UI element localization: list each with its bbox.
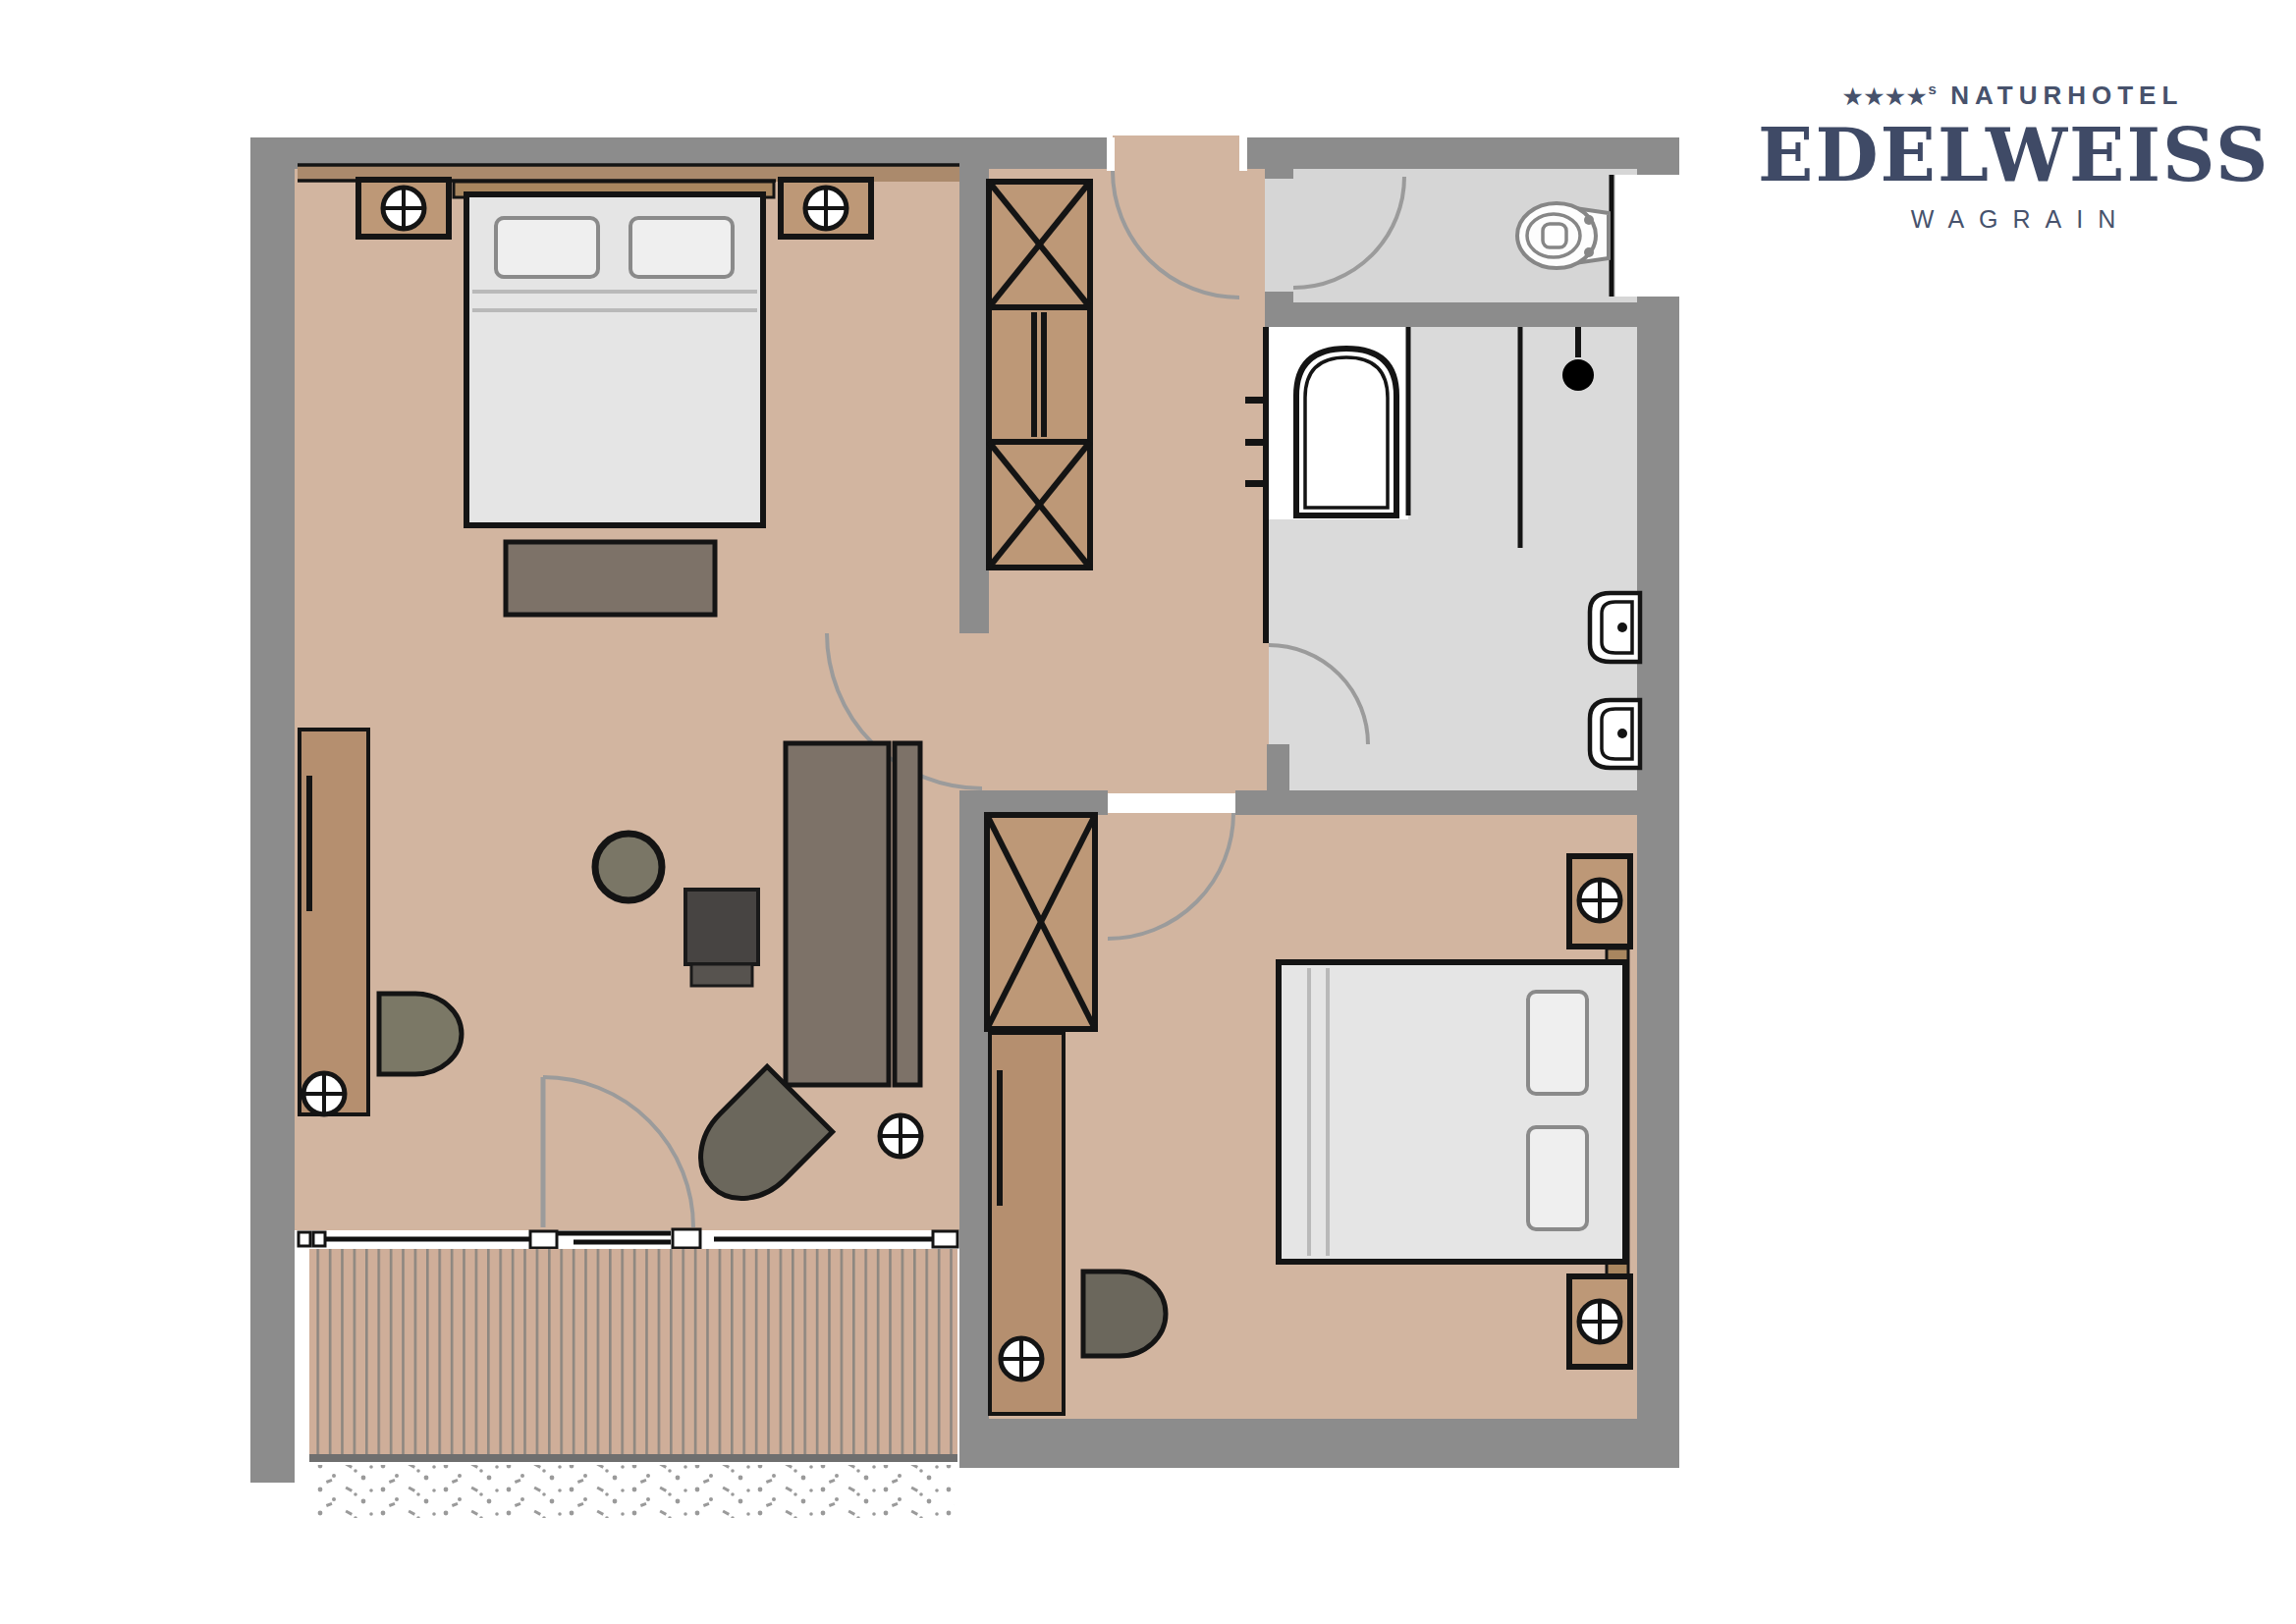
hotel-type: NATURHOTEL (1950, 81, 2183, 110)
lamp-icon-floor (880, 1115, 921, 1157)
wc-wall-stub-top (1265, 169, 1293, 179)
round-side-table (595, 834, 662, 900)
bed2-double-bed (1279, 962, 1625, 1262)
right-wall (1637, 137, 1679, 1468)
window-post (933, 1231, 957, 1247)
bathroom-bedroom2-wall (1235, 790, 1637, 815)
bedroom-1-door-gap-floor (959, 633, 989, 790)
lamp-icon-cabinet (1001, 1338, 1042, 1380)
wc-door-gap-floor (1265, 177, 1293, 292)
wardrobe-crossed-top (989, 182, 1090, 307)
bathroom-door-stub (1267, 744, 1289, 790)
long-desk (786, 743, 920, 1085)
wc-window (1612, 175, 1679, 297)
wall-sideboard (300, 730, 368, 1114)
wardrobe-crossed-bottom (989, 442, 1090, 568)
deck-edge (309, 1454, 957, 1462)
left-wall (250, 137, 295, 1483)
wardrobe-shelves (989, 307, 1090, 442)
lamp-icon-sideboard (303, 1073, 345, 1114)
pillow (1528, 992, 1587, 1094)
floorplan-page: { "brand": { "stars": "★★★★", "stars_sup… (0, 0, 2296, 1624)
wood-deck (309, 1249, 957, 1457)
lamp-icon-bottom (1579, 1301, 1620, 1342)
window-post (673, 1229, 700, 1248)
door-post (1239, 137, 1247, 171)
washbasin-upper (1590, 593, 1640, 662)
washbasin-lower (1590, 700, 1640, 768)
stars-superior: s (1929, 81, 1938, 97)
pillow (496, 218, 598, 277)
armchair (379, 994, 462, 1074)
window-post (313, 1232, 325, 1246)
gravel-strip (312, 1465, 955, 1518)
top-wall-right (1239, 137, 1679, 169)
balcony (309, 1249, 957, 1518)
entry-gap-floor (1113, 135, 1239, 171)
toilet-icon (1517, 203, 1609, 268)
balcony-window-front (295, 1229, 959, 1249)
bed1-double-bed (466, 194, 763, 525)
floor-plan (0, 0, 2296, 1624)
wc (1517, 203, 1609, 268)
bathtub-icon (1296, 349, 1396, 515)
hotel-location: WAGRAIN (1758, 205, 2269, 234)
window-post (530, 1231, 557, 1248)
hall-bedroom2-wall-left (989, 790, 1108, 815)
bottom-wall (959, 1419, 1679, 1468)
wardrobe-crossed (987, 815, 1095, 1029)
pillow (630, 218, 733, 277)
window-post (299, 1232, 310, 1246)
bed1-bench (506, 542, 715, 615)
hotel-category-line: ★★★★s NATURHOTEL (1758, 81, 2269, 111)
armchair (1083, 1272, 1166, 1356)
bedroom1-hall-wall-upper (959, 169, 989, 633)
hotel-name: EDELWEISS (1758, 119, 2269, 191)
lamp-icon-top (1579, 880, 1620, 921)
lamp-icon-left (383, 188, 424, 229)
pillow (1528, 1127, 1587, 1229)
wc-bathroom-wall (1265, 302, 1637, 327)
hotel-logo: ★★★★s NATURHOTEL EDELWEISS WAGRAIN (1758, 81, 2269, 234)
stars-icon: ★★★★ (1843, 84, 1929, 109)
lamp-icon-right (805, 188, 847, 229)
door-post (1107, 137, 1115, 171)
desk-chair-dark (685, 890, 758, 986)
